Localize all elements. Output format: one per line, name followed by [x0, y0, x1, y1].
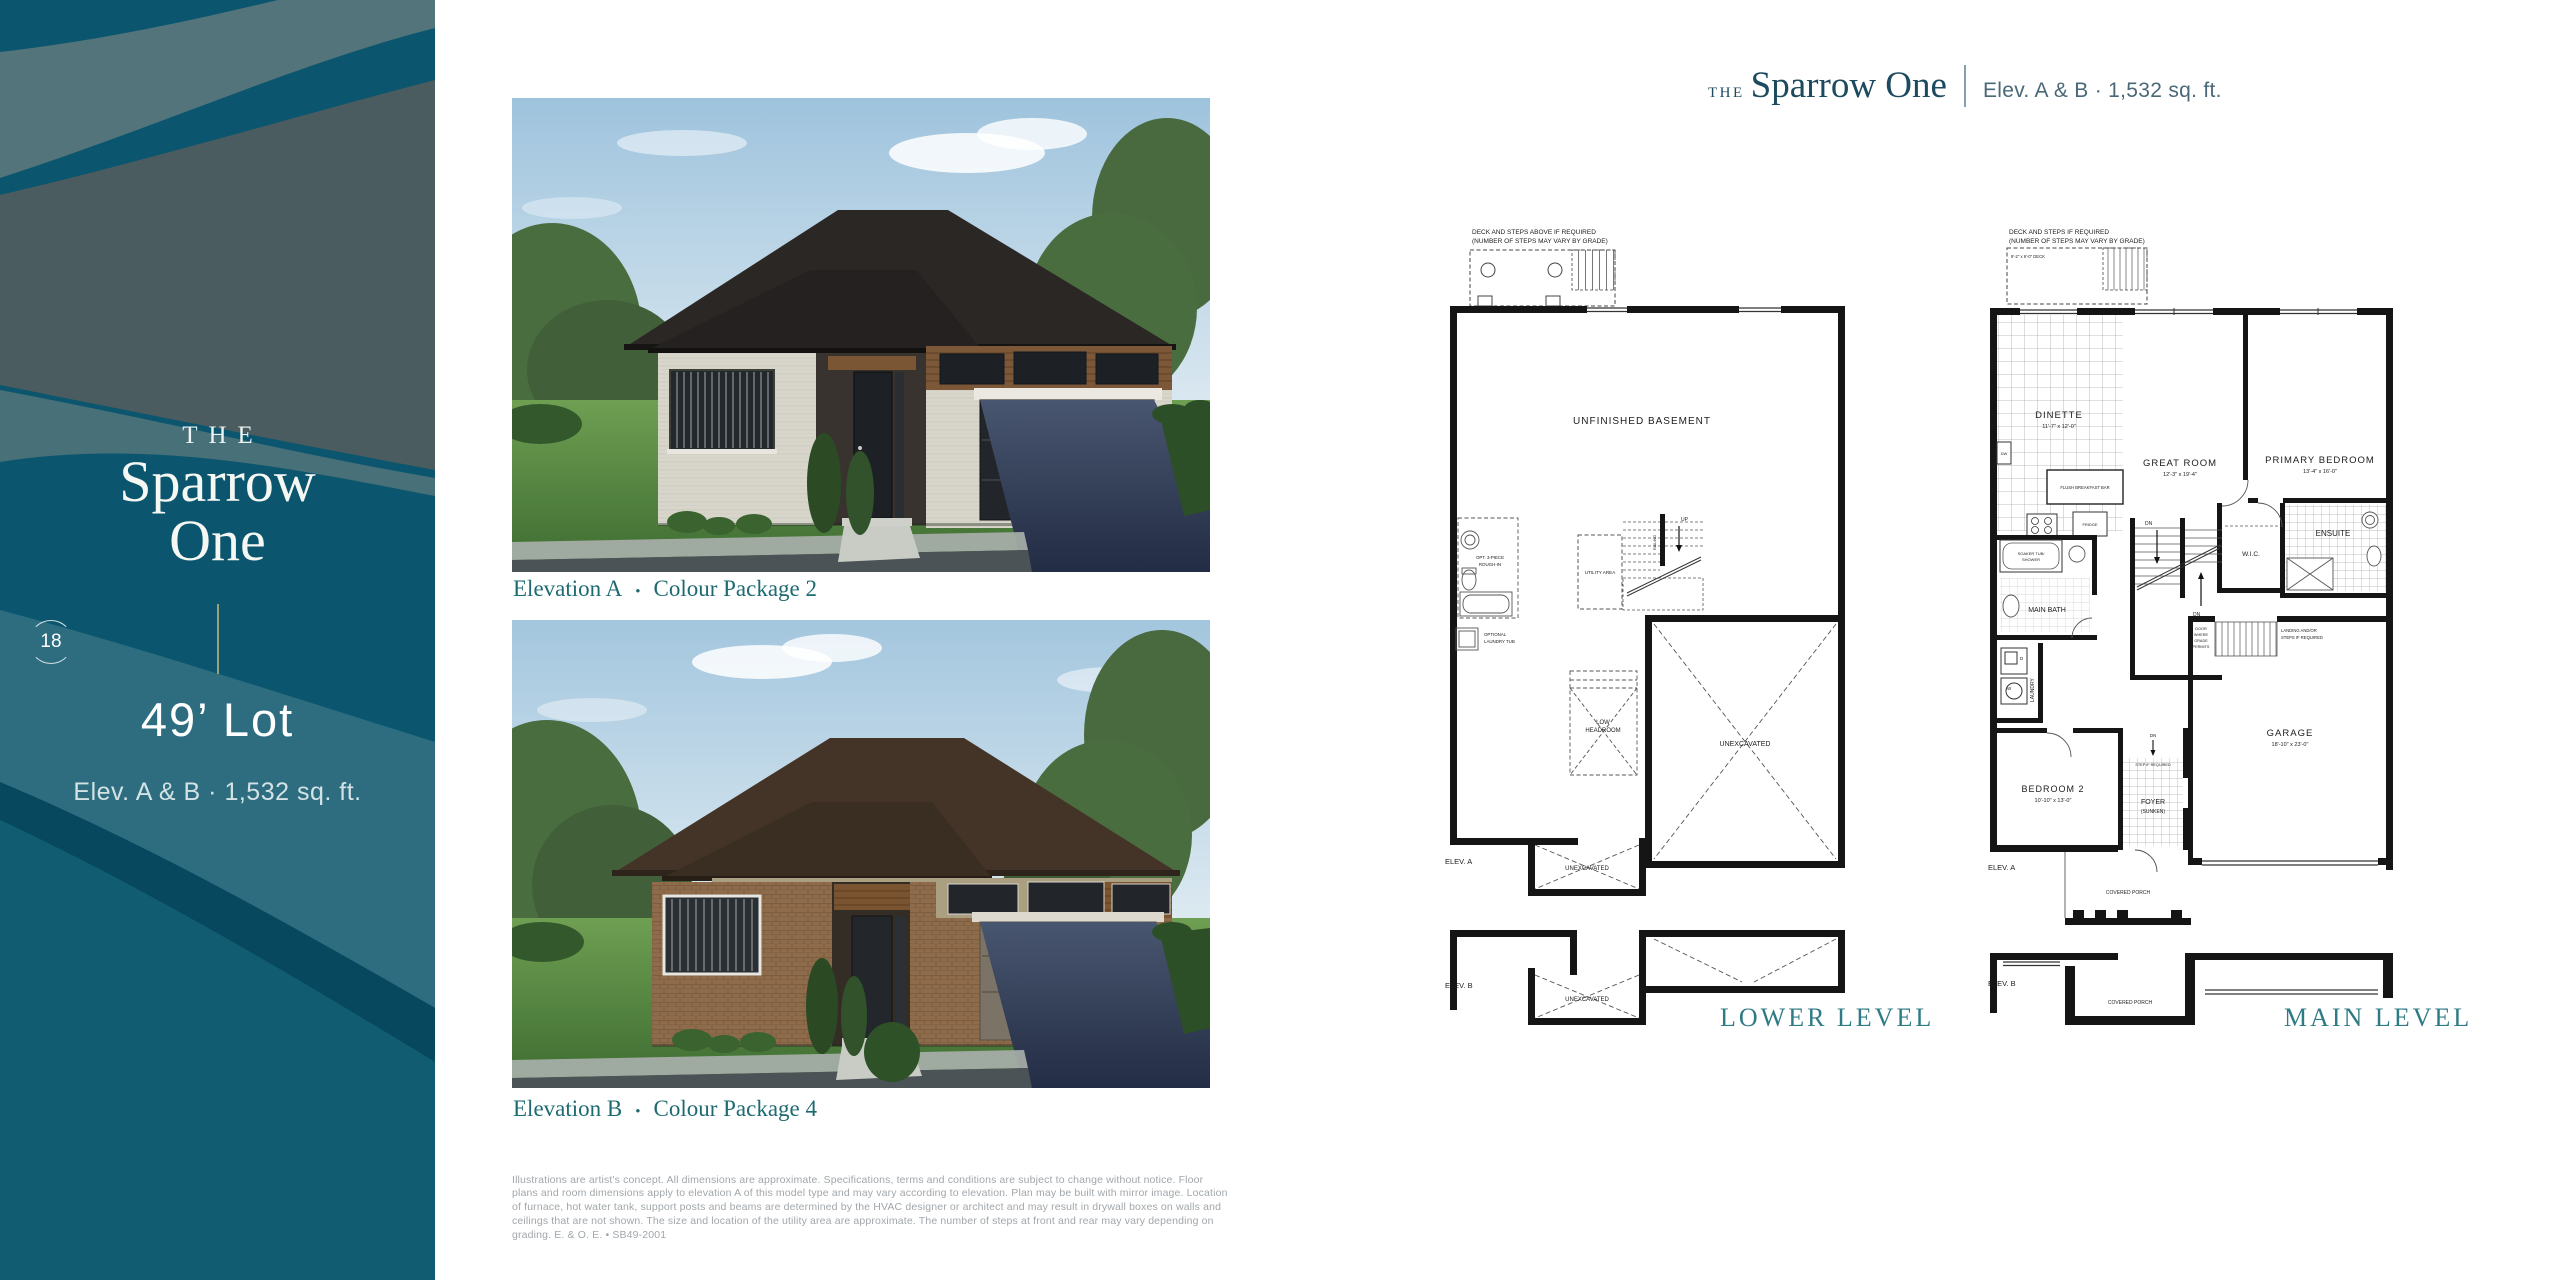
main-bath — [2000, 540, 2090, 632]
header-spec: Elev. A & B · 1,532 sq. ft. — [1983, 79, 2222, 103]
svg-text:UP: UP — [1681, 517, 1689, 523]
garage-landing: DOOR WHERE GRADE PERMITS LANDING AND/OR … — [2193, 622, 2323, 656]
unexcavated-b-label: UNEXCAVATED — [1565, 997, 1609, 1003]
dw-label: DW — [2001, 451, 2008, 456]
elevation-b-rendering — [512, 620, 1210, 1088]
basement-label: UNFINISHED BASEMENT — [1573, 416, 1711, 427]
sidebar-divider-line — [217, 604, 219, 674]
lower-level-floorplan: DECK AND STEPS ABOVE IF REQUIRED (NUMBER… — [1442, 218, 1912, 1028]
ensuite-label: ENSUITE — [2316, 529, 2351, 538]
header-model-name: Sparrow One — [1751, 64, 1947, 107]
laundry-tub — [1456, 628, 1478, 650]
stairs: UP RAILING — [1623, 514, 1703, 610]
porch-a: COVERED PORCH — [2065, 852, 2191, 925]
lot-size-label: 49’ Lot — [0, 692, 435, 747]
deck-stairs — [1572, 250, 1615, 290]
wic-label: W.I.C. — [2242, 551, 2260, 558]
low-headroom-label-1: LOW — [1596, 720, 1610, 726]
brochure-page: THE Sparrow One 18 49’ Lot Elev. A & B ·… — [0, 0, 2560, 1280]
garage-dims: 18'-10" x 23'-0" — [2272, 742, 2309, 748]
svg-text:GRADE: GRADE — [2194, 639, 2208, 643]
lower-level-title: LOWER LEVEL — [1720, 1003, 1934, 1033]
caption-a-bullet: • — [635, 584, 640, 601]
primary-bedroom-label: PRIMARY BEDROOM — [2265, 455, 2375, 466]
foyer-sunken-label: (SUNKEN) — [2141, 809, 2166, 815]
foyer-label: FOYER — [2141, 799, 2165, 806]
laundry-tub-label-2: LAUNDRY TUB — [1484, 639, 1515, 644]
dinette-label: DINETTE — [2035, 410, 2083, 421]
bedroom2-label: BEDROOM 2 — [2021, 784, 2084, 794]
garage-door-line — [2202, 861, 2378, 865]
rough-in-label-2: ROUGH-IN — [1479, 562, 1501, 567]
step-required-label: STEP IF REQUIRED — [2135, 763, 2171, 767]
primary-bedroom-dims: 13'-4" x 16'-0" — [2303, 469, 2337, 475]
main-deck-note-2: (NUMBER OF STEPS MAY VARY BY GRADE) — [2009, 238, 2145, 245]
bedroom2-dims: 10'-10" x 13'-0" — [2035, 798, 2072, 804]
sidebar-model-name: Sparrow One — [0, 452, 435, 570]
svg-text:WHERE: WHERE — [2194, 633, 2209, 637]
sidebar-model-line1: Sparrow — [0, 452, 435, 511]
sidebar-model-line2: One — [0, 511, 435, 570]
utility-area-label: UTILITY AREA — [1585, 570, 1616, 575]
stairs: DN DN RAILING — [2135, 521, 2222, 618]
flush-bar-label: FLUSH BREAKFAST BAR — [2060, 485, 2109, 490]
stairs-railing: RAILING — [2180, 555, 2184, 570]
sidebar: THE Sparrow One 18 49’ Lot Elev. A & B ·… — [0, 0, 435, 1280]
main-level-title: MAIN LEVEL — [2284, 1003, 2472, 1033]
elev-b-label: ELEV. B — [1445, 981, 1473, 990]
caption-elevation-a: Elevation A • Colour Package 2 — [513, 576, 817, 602]
sidebar-eyebrow: THE — [0, 422, 435, 450]
unexcavated-area: UNEXCAVATED — [1645, 615, 1845, 868]
deck-size-label: 9'-2" x 6'-0" DECK — [2011, 254, 2045, 259]
elevation-a-rendering — [512, 98, 1210, 572]
disclaimer-text: Illustrations are artist's concept. All … — [512, 1174, 1230, 1244]
svg-text:RAILING: RAILING — [1653, 535, 1657, 550]
elev-a-label: ELEV. A — [1445, 857, 1472, 866]
front-walk — [838, 526, 920, 562]
great-room-dims: 12'-3" x 19'-4" — [2163, 472, 2197, 478]
windows — [2020, 308, 2357, 315]
stairs-dn-upper: DN — [2145, 521, 2153, 527]
covered-porch-b-label: COVERED PORCH — [2108, 1000, 2153, 1006]
page-number-badge: 18 — [29, 620, 73, 664]
soaker-label-2: SHOWER — [2022, 557, 2040, 562]
great-room-label: GREAT ROOM — [2143, 458, 2217, 469]
svg-text:UNEXCAVATED: UNEXCAVATED — [1720, 741, 1771, 748]
page-number: 18 — [40, 631, 61, 653]
svg-text:LANDING AND/OR: LANDING AND/OR — [2281, 628, 2317, 633]
lower-deck-note-2: (NUMBER OF STEPS MAY VARY BY GRADE) — [1472, 238, 1608, 245]
main-elev-a-label: ELEV. A — [1988, 863, 2015, 872]
svg-text:COVERED PORCH: COVERED PORCH — [2106, 890, 2151, 896]
deck-stairs — [2103, 248, 2147, 290]
garage-label: GARAGE — [2267, 728, 2314, 739]
stairs-dn-lower: DN — [2193, 612, 2201, 618]
caption-b-bullet: • — [635, 1104, 640, 1121]
caption-b-package: Colour Package 4 — [654, 1096, 818, 1122]
fridge-label: FRIDGE — [2082, 522, 2097, 527]
caption-a-name: Elevation A — [513, 576, 622, 602]
caption-a-package: Colour Package 2 — [654, 576, 818, 602]
laundry-label: LAUNDRY — [2030, 678, 2036, 702]
header-divider — [1964, 65, 1966, 107]
svg-text:DOOR: DOOR — [2195, 627, 2207, 631]
front-window — [670, 370, 774, 450]
sidebar-spec-label: Elev. A & B · 1,532 sq. ft. — [0, 778, 435, 807]
porch-pillar-right — [910, 882, 936, 1046]
caption-b-name: Elevation B — [513, 1096, 622, 1122]
lower-deck-note-1: DECK AND STEPS ABOVE IF REQUIRED — [1472, 229, 1596, 236]
bath-rough-in — [1458, 518, 1518, 618]
main-deck-note-1: DECK AND STEPS IF REQUIRED — [2009, 229, 2109, 236]
main-bath-label: MAIN BATH — [2028, 607, 2066, 614]
unexcavated-a-label: UNEXCAVATED — [1565, 866, 1609, 872]
page-header: THE Sparrow One Elev. A & B · 1,532 sq. … — [1708, 64, 2222, 107]
caption-elevation-b: Elevation B • Colour Package 4 — [513, 1096, 817, 1122]
foyer-dn: DN — [2150, 733, 2157, 738]
header-eyebrow: THE — [1708, 85, 1745, 102]
main-level-floorplan: DECK AND STEPS IF REQUIRED (NUMBER OF ST… — [1985, 218, 2405, 1028]
main-elev-b-label: ELEV. B — [1988, 979, 2016, 988]
svg-text:STEPS IF REQUIRED: STEPS IF REQUIRED — [2281, 635, 2323, 640]
low-headroom-label-2: HEADROOM — [1585, 728, 1620, 734]
rough-in-label-1: OPT. 3-PIECE — [1476, 555, 1504, 560]
svg-text:PERMITS: PERMITS — [2193, 645, 2210, 649]
laundry-tub-label-1: OPTIONAL — [1484, 632, 1507, 637]
soaker-label-1: SOAKER TUB/ — [2018, 551, 2046, 556]
dinette-dims: 11'-7" x 12'-0" — [2042, 424, 2075, 430]
